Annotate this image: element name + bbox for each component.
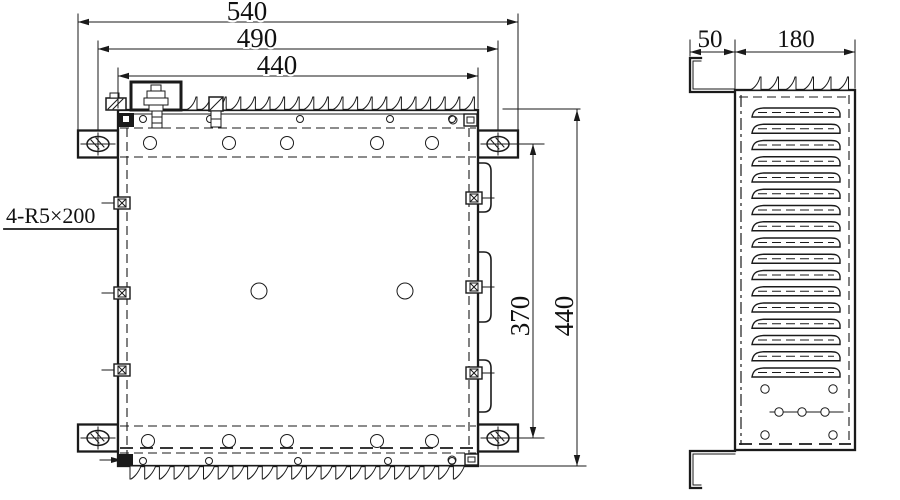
side-view	[690, 58, 855, 488]
front-view	[78, 82, 518, 479]
hole	[140, 458, 147, 465]
side-top-fins	[750, 77, 849, 90]
mounting-tab	[478, 131, 518, 158]
hole	[385, 458, 392, 465]
bottom-cooling-fins	[130, 466, 464, 479]
dim-180-label: 180	[777, 26, 815, 53]
louver	[752, 303, 840, 312]
hole	[761, 385, 769, 393]
louver	[752, 319, 840, 328]
hole	[223, 435, 236, 448]
fin	[230, 97, 241, 110]
fin	[259, 97, 270, 110]
dim-50-label: 50	[698, 26, 723, 53]
hole	[223, 137, 236, 150]
dim-490-label: 490	[237, 23, 278, 53]
hole	[206, 458, 213, 465]
louver	[752, 173, 840, 182]
drawing-canvas: 540 490 440 370 440 4-R5×200 50 180	[0, 0, 900, 500]
fin	[365, 466, 376, 479]
fin	[420, 97, 431, 110]
louver	[752, 336, 840, 345]
louver	[752, 108, 840, 117]
fin	[380, 466, 391, 479]
hole	[297, 116, 304, 123]
dim-440-height-label: 440	[549, 296, 579, 337]
hole	[295, 458, 302, 465]
fin	[768, 77, 779, 90]
louver	[752, 189, 840, 198]
fin	[186, 97, 197, 110]
fin	[336, 466, 347, 479]
engineering-drawing: 540 490 440 370 440 4-R5×200 50 180	[0, 0, 900, 500]
hole	[142, 435, 155, 448]
fin	[424, 466, 435, 479]
fin	[449, 97, 460, 110]
fin	[820, 77, 831, 90]
hole	[426, 137, 439, 150]
fin	[453, 466, 464, 479]
louver	[752, 238, 840, 247]
louver	[752, 124, 840, 133]
clamp	[102, 287, 130, 299]
fin	[434, 97, 445, 110]
hole	[761, 431, 769, 439]
fin	[361, 97, 372, 110]
fin	[750, 77, 761, 90]
fin	[145, 466, 156, 479]
fin	[395, 466, 406, 479]
louver	[752, 222, 840, 231]
fin	[288, 97, 299, 110]
hole	[371, 137, 384, 150]
hole	[371, 435, 384, 448]
clamp	[102, 197, 130, 209]
fin	[204, 466, 215, 479]
fin	[803, 77, 814, 90]
side-flanges	[690, 58, 735, 488]
fin	[248, 466, 259, 479]
fin	[189, 466, 200, 479]
fin	[274, 97, 285, 110]
fin	[159, 466, 170, 479]
fin	[405, 97, 416, 110]
fin	[351, 466, 362, 479]
louver	[752, 271, 840, 280]
hole	[144, 137, 157, 150]
fin	[439, 466, 450, 479]
fin	[233, 466, 244, 479]
fin	[244, 97, 255, 110]
hole	[798, 408, 806, 416]
fin	[321, 466, 332, 479]
hole	[821, 408, 829, 416]
hole	[426, 435, 439, 448]
slot-note-label: 4-R5×200	[6, 203, 95, 228]
clamp	[466, 192, 494, 204]
fin	[174, 466, 185, 479]
fin	[463, 97, 474, 110]
mounting-tab	[78, 131, 118, 158]
fin	[292, 466, 303, 479]
louver	[752, 157, 840, 166]
fin	[785, 77, 796, 90]
hole	[251, 283, 267, 299]
fin	[218, 466, 229, 479]
hole	[140, 116, 147, 123]
fin	[390, 97, 401, 110]
fin	[303, 97, 314, 110]
fin	[376, 97, 387, 110]
clamp	[466, 367, 494, 379]
dim-440-width-label: 440	[257, 50, 298, 80]
louver	[752, 368, 840, 377]
hole	[775, 408, 783, 416]
fin	[130, 466, 141, 479]
mounting-tab	[78, 425, 118, 452]
fin	[347, 97, 358, 110]
louver	[752, 141, 840, 150]
clamp	[102, 364, 130, 376]
hole	[829, 385, 837, 393]
fin	[332, 97, 343, 110]
fin	[409, 466, 420, 479]
dim-370-label: 370	[505, 296, 535, 337]
hole	[397, 283, 413, 299]
hole	[281, 435, 294, 448]
top-cooling-fins	[186, 97, 474, 110]
fin	[838, 77, 849, 90]
hole	[281, 137, 294, 150]
fin	[306, 466, 317, 479]
hole	[829, 431, 837, 439]
fin	[262, 466, 273, 479]
fin	[317, 97, 328, 110]
clamp	[466, 281, 494, 293]
louver	[752, 287, 840, 296]
hole	[387, 116, 394, 123]
mounting-tab	[478, 425, 518, 452]
vent-louvers	[752, 108, 840, 377]
louver	[752, 206, 840, 215]
louver	[752, 352, 840, 361]
louver	[752, 254, 840, 263]
front-body-outline	[118, 110, 478, 466]
fin	[277, 466, 288, 479]
